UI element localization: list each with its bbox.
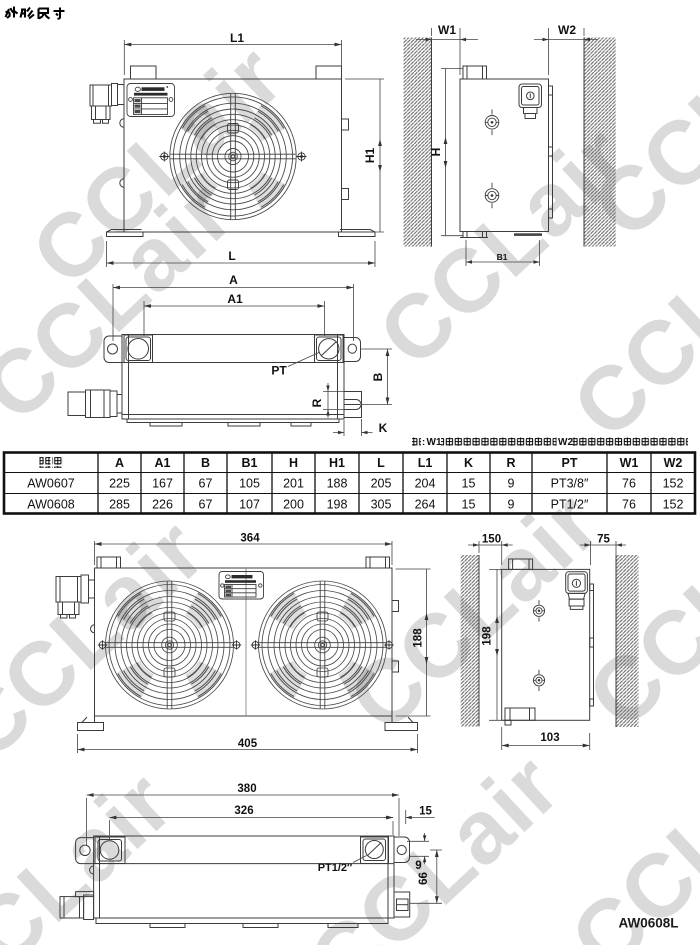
svg-text:H: H <box>429 148 443 157</box>
svg-text:B: B <box>371 372 385 381</box>
svg-text:305: 305 <box>371 498 392 512</box>
svg-text:188: 188 <box>413 628 425 648</box>
svg-text:H: H <box>289 456 298 470</box>
svg-text:W1: W1 <box>427 437 442 448</box>
svg-text:105: 105 <box>239 477 260 491</box>
svg-text:205: 205 <box>371 477 392 491</box>
svg-text:107: 107 <box>239 498 260 512</box>
svg-text:152: 152 <box>663 477 684 491</box>
svg-text:201: 201 <box>283 477 304 491</box>
svg-text:A1: A1 <box>227 292 243 306</box>
svg-text:AW0607: AW0607 <box>27 477 75 491</box>
svg-text:W1: W1 <box>438 23 456 37</box>
svg-text:198: 198 <box>327 498 348 512</box>
svg-text:H1: H1 <box>363 148 377 164</box>
svg-text:B: B <box>201 456 210 470</box>
svg-text:326: 326 <box>234 805 253 817</box>
svg-text:264: 264 <box>415 498 436 512</box>
svg-text:L1: L1 <box>418 456 433 470</box>
svg-text:9: 9 <box>508 498 515 512</box>
svg-text:9: 9 <box>415 860 421 872</box>
svg-text:405: 405 <box>238 738 258 750</box>
svg-text:67: 67 <box>199 477 213 491</box>
svg-text:PT1/2″: PT1/2″ <box>318 862 353 874</box>
svg-text:380: 380 <box>237 783 256 795</box>
svg-text:L: L <box>228 249 235 263</box>
svg-text:285: 285 <box>109 498 130 512</box>
svg-text:167: 167 <box>152 477 173 491</box>
svg-text:K: K <box>379 421 388 435</box>
svg-text:W2: W2 <box>558 437 573 448</box>
svg-text:A: A <box>115 456 124 470</box>
svg-text:AW0608L: AW0608L <box>618 916 678 931</box>
svg-text:200: 200 <box>283 498 304 512</box>
svg-text:150: 150 <box>482 534 501 546</box>
svg-text:9: 9 <box>508 477 515 491</box>
svg-text:PT: PT <box>271 364 287 378</box>
svg-text:AW0608: AW0608 <box>27 498 75 512</box>
svg-text:198: 198 <box>482 626 494 646</box>
svg-text:W2: W2 <box>558 23 576 37</box>
svg-text:15: 15 <box>419 806 432 818</box>
svg-text:PT: PT <box>562 456 578 470</box>
svg-text:W1: W1 <box>620 456 639 470</box>
svg-text:188: 188 <box>327 477 348 491</box>
svg-text:226: 226 <box>152 498 173 512</box>
svg-text:75: 75 <box>597 534 610 546</box>
svg-text:K: K <box>464 456 473 470</box>
svg-text:L1: L1 <box>230 31 244 45</box>
svg-text:225: 225 <box>109 477 130 491</box>
svg-text:15: 15 <box>462 477 476 491</box>
svg-text::: : <box>422 437 425 448</box>
svg-text:103: 103 <box>540 732 559 744</box>
svg-text:152: 152 <box>663 498 684 512</box>
svg-text:A: A <box>229 273 238 287</box>
svg-text:B1: B1 <box>242 456 258 470</box>
svg-text:R: R <box>506 456 515 470</box>
svg-text:B1: B1 <box>497 252 508 262</box>
svg-text:L: L <box>377 456 385 470</box>
svg-text:66: 66 <box>418 872 430 885</box>
svg-text:67: 67 <box>199 498 213 512</box>
svg-text:PT1/2″: PT1/2″ <box>551 498 589 512</box>
svg-text:R: R <box>310 398 324 407</box>
svg-text:76: 76 <box>622 477 636 491</box>
svg-text:364: 364 <box>240 533 260 545</box>
svg-text:H1: H1 <box>329 456 345 470</box>
svg-text:15: 15 <box>462 498 476 512</box>
svg-text:204: 204 <box>415 477 436 491</box>
svg-text:PT3/8″: PT3/8″ <box>551 477 589 491</box>
svg-text:W2: W2 <box>664 456 683 470</box>
svg-text:76: 76 <box>622 498 636 512</box>
svg-text:A1: A1 <box>155 456 171 470</box>
